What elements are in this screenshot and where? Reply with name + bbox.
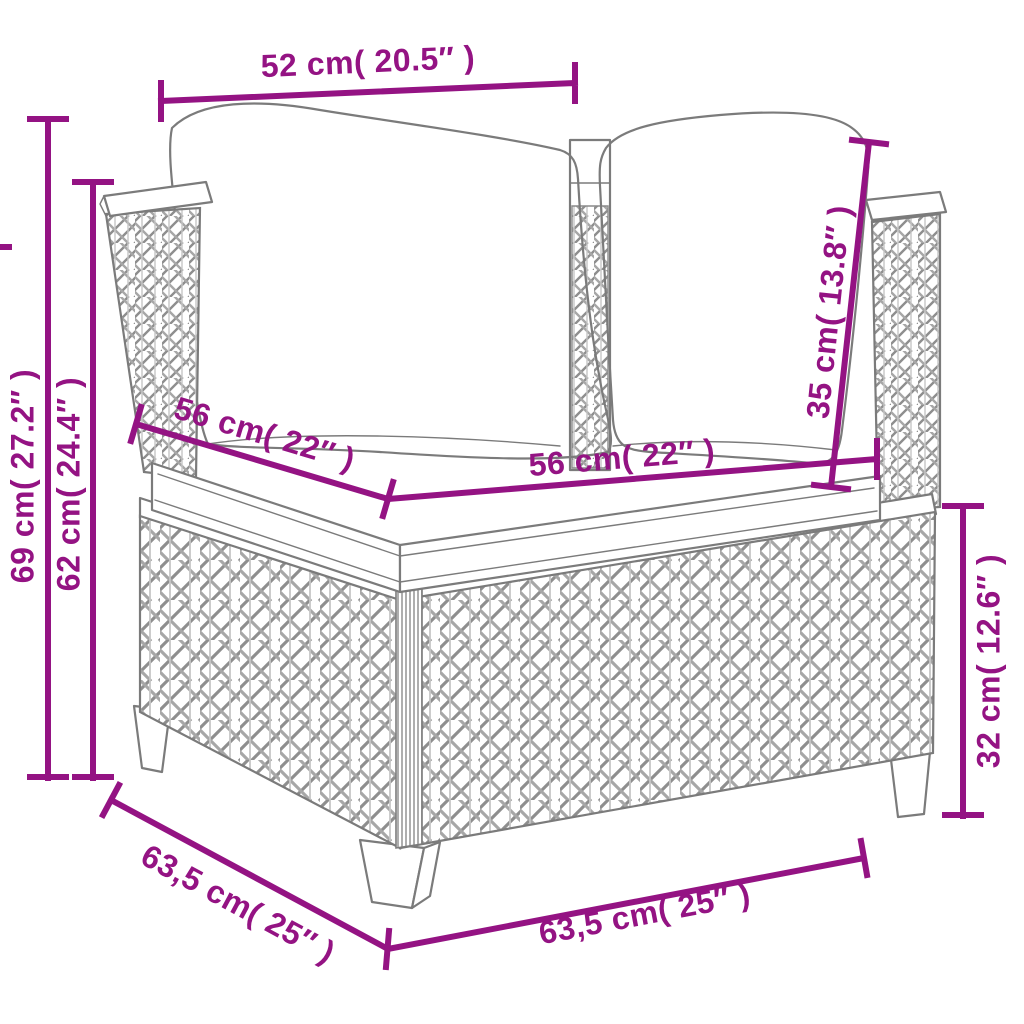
dimension-base-width: 63,5 cm( 25″ ) bbox=[386, 841, 867, 967]
dimension-overall-height-label: 69 cm( 27.2″ ) bbox=[4, 369, 40, 583]
dimension-arm-height: 62 cm( 24.4″ ) bbox=[50, 182, 111, 778]
dimension-base-width-label: 63,5 cm( 25″ ) bbox=[536, 876, 753, 952]
dimension-base-height-label: 32 cm( 12.6″ ) bbox=[970, 554, 1006, 768]
sofa-dimension-drawing: 52 cm( 20.5″ ) 69 cm( 27.2″ ) 62 cm( 24.… bbox=[0, 0, 1024, 1024]
product-dimension-diagram: 52 cm( 20.5″ ) 69 cm( 27.2″ ) 62 cm( 24.… bbox=[0, 0, 1024, 1024]
dimension-top-width-label: 52 cm( 20.5″ ) bbox=[260, 39, 476, 84]
dimension-top-width: 52 cm( 20.5″ ) bbox=[161, 39, 575, 119]
dimension-arm-height-label: 62 cm( 24.4″ ) bbox=[50, 377, 86, 591]
back-frame-strip bbox=[570, 140, 610, 470]
dimension-base-height: 32 cm( 12.6″ ) bbox=[945, 506, 1006, 816]
left-back-cushion bbox=[170, 103, 611, 458]
dimension-base-depth-label: 63,5 cm( 25″ ) bbox=[135, 837, 341, 970]
left-armrest bbox=[100, 182, 212, 478]
